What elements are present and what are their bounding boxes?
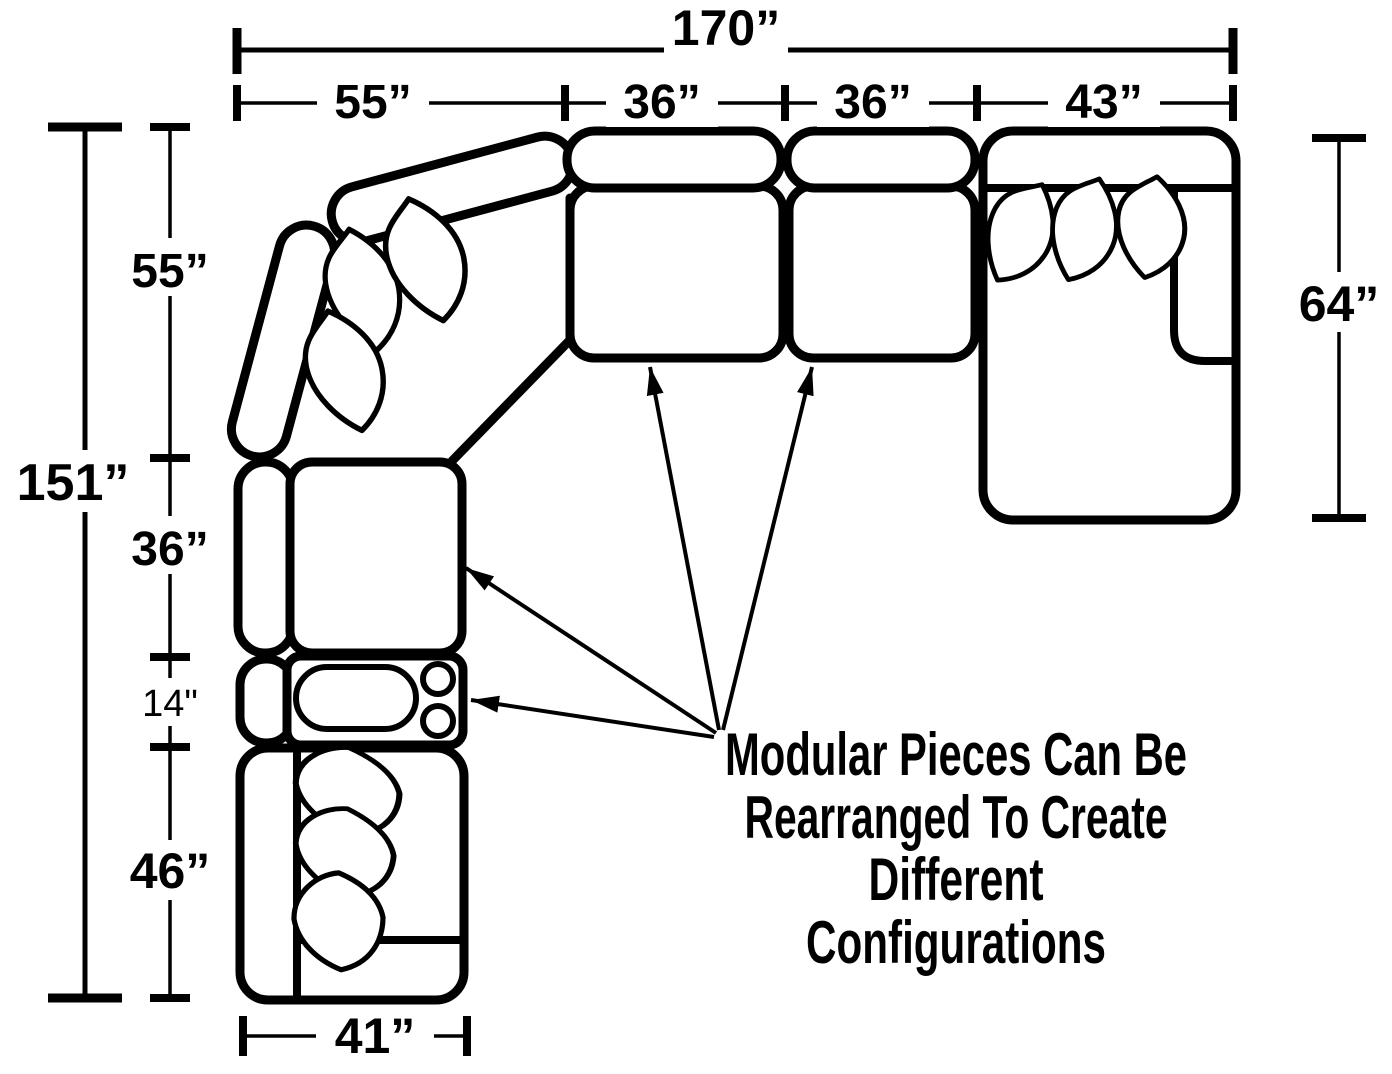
dim-seg-55: 55” [334,76,411,129]
sofa-outline [225,130,1236,1000]
seat-cushion [789,186,975,358]
seat-cushion [290,462,462,653]
cup-holder [423,664,453,694]
note-line-1: Modular Pieces Can Be [725,721,1187,788]
dim-seg-36a: 36” [623,76,700,129]
dim-seg-36b: 36” [834,76,911,129]
console-section [240,656,463,745]
note-line-3: Different [869,846,1044,913]
corner-section [225,130,579,463]
cup-holder [423,706,453,736]
dimension-left-total: 151” [8,127,138,998]
seat-cushion [570,186,783,358]
dimension-bottom: 41” [243,1006,467,1064]
dim-total-width: 170” [672,0,780,56]
bottom-arm-chair [240,737,464,1000]
chaise-section [967,131,1236,520]
dimension-top-total: 170” [237,0,1233,74]
arrow-to-seat-2 [723,367,812,730]
corner-seat-edge [452,198,570,461]
dimension-left-segments: 55” 36” 14" 46” [126,127,214,998]
sectional-dimension-diagram: 170” 55” 36” 36” 43” 151” [0,0,1392,1074]
backrest [567,131,781,188]
note-text: Modular Pieces Can Be Rearranged To Crea… [725,721,1187,976]
console-tray [296,667,416,729]
dim-seg-14v: 14" [142,683,198,725]
dim-seg-43: 43” [1065,76,1142,129]
dim-seg-46v: 46” [130,843,211,899]
note-line-2: Rearranged To Create [745,784,1168,851]
note-line-4: Configurations [806,909,1106,976]
backrest [238,462,293,653]
dim-total-height: 151” [17,454,130,512]
armless-seat-2 [787,131,975,358]
backrest [787,131,975,188]
armless-seat-1 [567,131,783,358]
dim-seg-36v: 36” [131,523,208,576]
dim-bottom-width: 41” [335,1008,416,1064]
dimension-top-segments: 55” 36” 36” 43” [237,76,1233,129]
dimension-right-chaise: 64” [1298,138,1380,518]
dim-chaise-depth: 64” [1299,276,1380,332]
callout-arrows [466,367,812,737]
diagram-svg: 170” 55” 36” 36” 43” 151” [0,0,1392,1074]
arrow-to-left-chair [466,568,716,733]
arrow-to-seat-1 [650,367,719,730]
left-armless-chair [238,462,462,653]
dim-seg-55v: 55” [131,245,208,298]
